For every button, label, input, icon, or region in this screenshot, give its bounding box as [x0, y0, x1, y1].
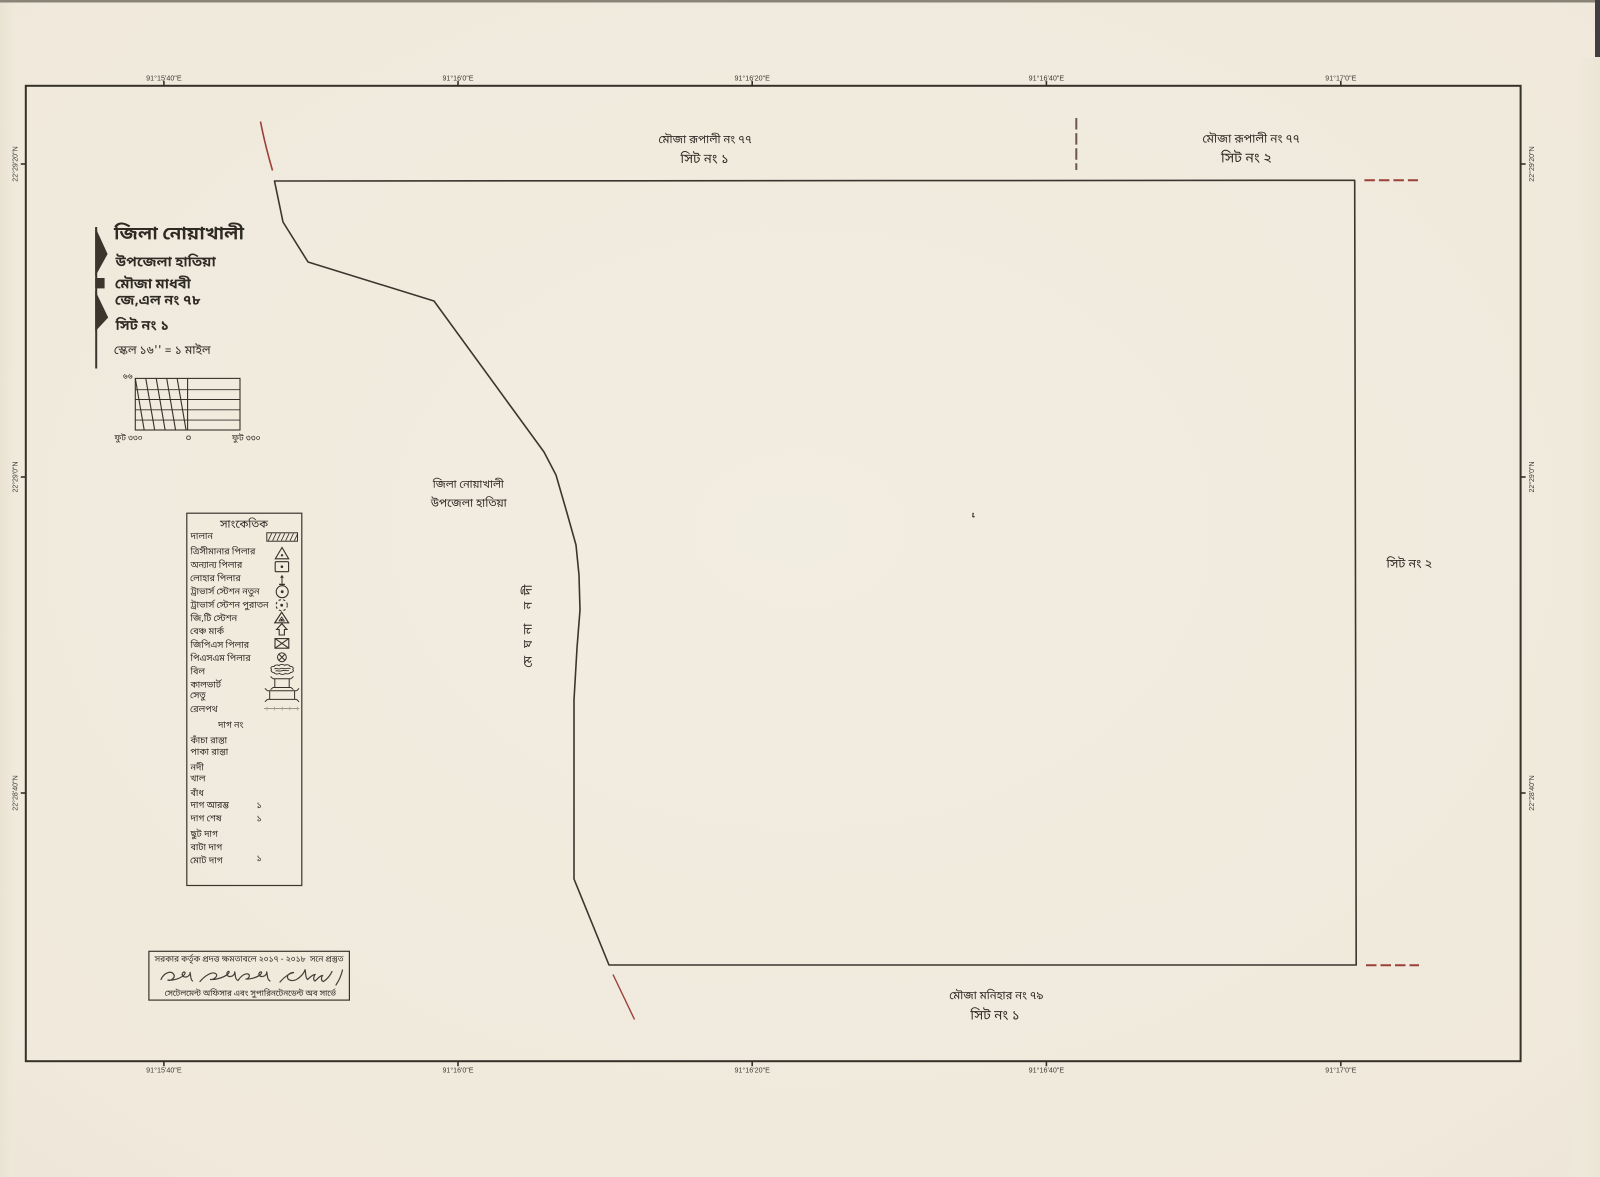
svg-text:91°17'0"E: 91°17'0"E: [1325, 1066, 1356, 1075]
svg-text:91°16'40"E: 91°16'40"E: [1029, 1066, 1065, 1075]
svg-text:22°28'40"N: 22°28'40"N: [1527, 775, 1536, 811]
svg-text:91°15'40"E: 91°15'40"E: [146, 74, 182, 83]
svg-text:91°16'0"E: 91°16'0"E: [443, 1066, 474, 1075]
svg-text:91°15'40"E: 91°15'40"E: [146, 1066, 182, 1075]
svg-text:22°29'20"N: 22°29'20"N: [1527, 146, 1536, 182]
svg-text:91°16'0"E: 91°16'0"E: [443, 74, 474, 83]
svg-text:22°29'0"N: 22°29'0"N: [1527, 462, 1536, 493]
svg-text:22°29'0"N: 22°29'0"N: [10, 462, 19, 493]
svg-text:91°16'20"E: 91°16'20"E: [734, 74, 770, 83]
svg-text:22°28'40"N: 22°28'40"N: [10, 775, 19, 811]
svg-text:22°29'20"N: 22°29'20"N: [10, 146, 19, 182]
svg-text:91°16'20"E: 91°16'20"E: [734, 1066, 770, 1075]
svg-text:91°17'0"E: 91°17'0"E: [1325, 74, 1356, 83]
svg-text:91°16'40"E: 91°16'40"E: [1029, 74, 1065, 83]
